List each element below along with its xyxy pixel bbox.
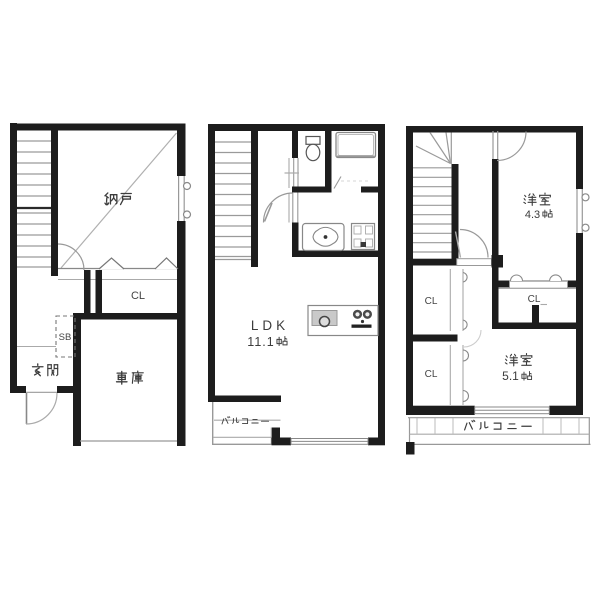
svg-text:11.1: 11.1 xyxy=(247,335,274,349)
svg-text:5.1: 5.1 xyxy=(502,369,519,383)
svg-text:CL: CL xyxy=(528,294,541,305)
svg-text:CL: CL xyxy=(425,296,438,307)
svg-text:4.3: 4.3 xyxy=(525,209,540,221)
svg-text:CL: CL xyxy=(131,290,145,302)
svg-text:SB: SB xyxy=(59,332,72,343)
svg-text:LDK: LDK xyxy=(251,318,289,333)
svg-text:CL: CL xyxy=(425,369,438,380)
